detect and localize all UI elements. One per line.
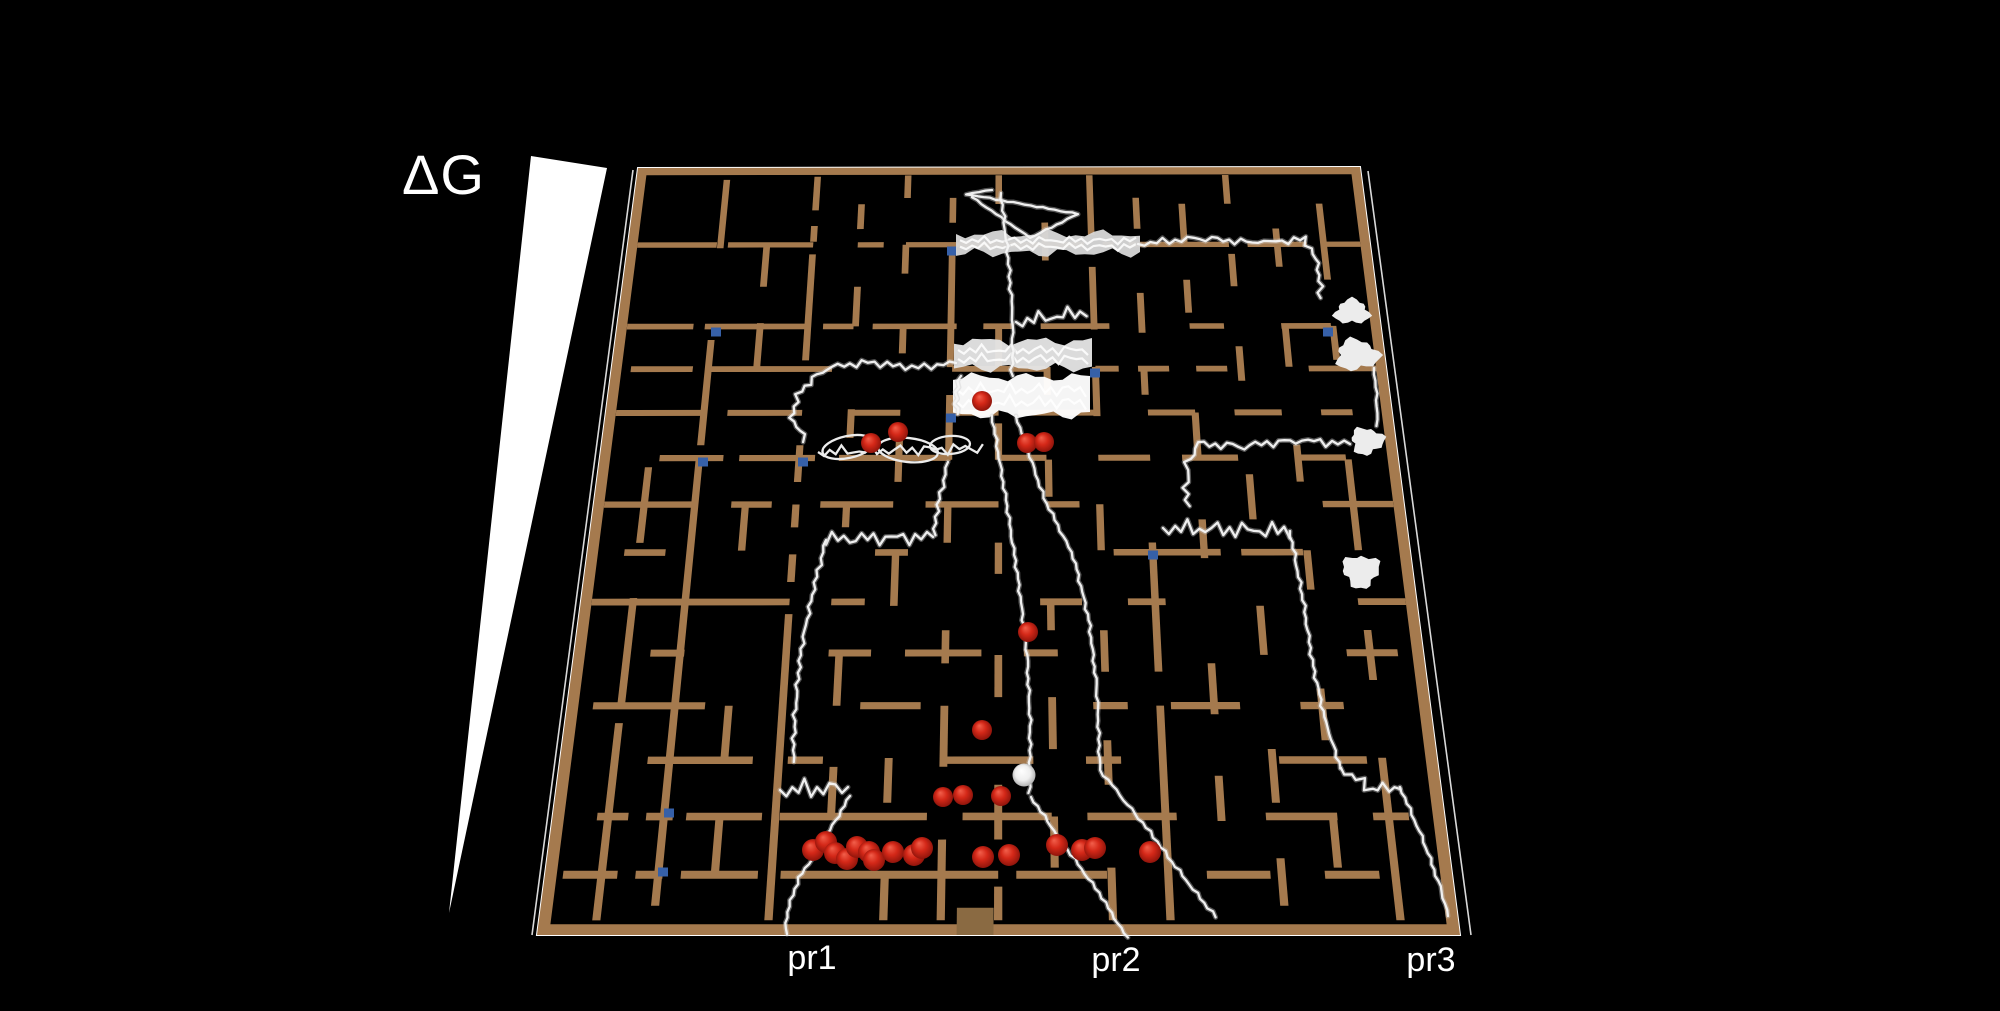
grid-dash-h bbox=[728, 242, 814, 247]
grid-dash-h bbox=[591, 599, 790, 606]
grid-dash-h bbox=[1047, 501, 1080, 507]
grid-dash-h bbox=[1098, 455, 1150, 461]
red-minimum-sphere bbox=[972, 391, 992, 411]
grid-dash-h bbox=[631, 366, 694, 372]
red-minimum-sphere bbox=[882, 841, 904, 863]
grid-dash-v bbox=[1246, 474, 1257, 519]
free-energy-scale-wedge bbox=[449, 156, 607, 913]
grid-dash-v bbox=[1293, 445, 1304, 482]
red-minimum-sphere bbox=[863, 849, 885, 871]
grid-dash-v bbox=[1222, 175, 1231, 204]
grid-dash-h bbox=[1322, 501, 1393, 507]
figure-canvas: ΔG pr1 pr2 pr3 bbox=[0, 0, 2000, 1011]
grid-dash-v bbox=[1256, 606, 1268, 655]
grid-dash-h bbox=[1016, 871, 1107, 879]
grid-dash-h bbox=[708, 366, 832, 372]
grid-dash-h bbox=[681, 871, 759, 879]
grid-dash-v bbox=[827, 767, 838, 817]
trajectory-central-line-1 bbox=[992, 416, 1032, 793]
grid-dash-h bbox=[627, 324, 694, 330]
grid-dash-v bbox=[902, 245, 910, 274]
grid-dash-h bbox=[593, 702, 706, 709]
grid-dash-h bbox=[604, 501, 695, 507]
grid-dash-v bbox=[1048, 697, 1057, 749]
grid-dash-h bbox=[963, 813, 1052, 821]
red-minimum-sphere bbox=[888, 422, 908, 442]
blue-marker bbox=[698, 458, 708, 467]
grid-dash-h bbox=[563, 871, 618, 879]
grid-dash-v bbox=[1047, 602, 1055, 630]
grid-dash-h bbox=[1279, 756, 1368, 764]
grid-dash-v bbox=[1149, 543, 1163, 672]
red-minimum-sphere bbox=[911, 837, 933, 859]
red-minimum-sphere bbox=[1139, 841, 1161, 863]
grid-dash-h bbox=[637, 242, 717, 248]
grid-dash-v bbox=[939, 706, 948, 767]
delta-g-label: ΔG bbox=[402, 147, 485, 203]
red-minimum-sphere bbox=[861, 433, 881, 453]
grid-dash-h bbox=[780, 871, 998, 879]
red-minimum-sphere bbox=[1084, 837, 1106, 859]
grid-dash-v bbox=[760, 245, 770, 287]
trajectory-halo-band2-left-run bbox=[789, 360, 956, 442]
grid-dash-h bbox=[1321, 242, 1360, 247]
grid-dash-v bbox=[1228, 254, 1237, 286]
blue-marker bbox=[1323, 328, 1333, 337]
grid-dash-v bbox=[890, 551, 899, 606]
grid-dash-v bbox=[1329, 816, 1342, 867]
grid-dash-v bbox=[899, 326, 907, 353]
grid-dash-h bbox=[1207, 871, 1271, 879]
red-minimum-sphere bbox=[1046, 834, 1068, 856]
blue-marker bbox=[711, 328, 721, 337]
grid-dash-v bbox=[994, 887, 1002, 921]
grid-lines bbox=[563, 175, 1410, 935]
grid-dash-h bbox=[875, 549, 908, 556]
blue-marker bbox=[664, 809, 674, 818]
grid-dash-h bbox=[946, 756, 1034, 764]
grid-dash-h bbox=[1041, 323, 1110, 329]
grid-dash-h bbox=[686, 813, 762, 821]
blue-marker bbox=[947, 247, 957, 256]
grid-dash-v bbox=[1137, 293, 1146, 333]
grid-dash-h bbox=[999, 455, 1047, 461]
grid-dash-h bbox=[1196, 366, 1228, 372]
grid-dash-v bbox=[1268, 749, 1280, 803]
grid-dash-v bbox=[592, 723, 623, 920]
grid-dash-h bbox=[1321, 409, 1353, 415]
grid-dash-v bbox=[944, 504, 952, 542]
grid-dash-v bbox=[852, 287, 861, 327]
sampling-blob bbox=[1352, 427, 1387, 456]
grid-dash-v bbox=[883, 758, 893, 803]
grid-dash-v bbox=[1303, 550, 1314, 589]
grid-dash-h bbox=[873, 324, 957, 330]
grid-dash-v bbox=[1215, 776, 1226, 821]
grid-dash-h bbox=[823, 324, 854, 330]
grid-dash-v bbox=[711, 817, 724, 878]
grid-dash-v bbox=[1089, 267, 1098, 330]
grid-dash-h bbox=[1234, 409, 1282, 415]
grid-dash-v bbox=[857, 204, 865, 229]
red-minimum-sphere bbox=[972, 720, 992, 740]
grid-dash-v bbox=[949, 198, 956, 223]
grid-dash-v bbox=[833, 655, 843, 706]
blue-marker bbox=[946, 414, 956, 423]
blue-marker bbox=[658, 868, 668, 877]
grid-dash-v bbox=[941, 630, 949, 663]
grid-dash-v bbox=[791, 505, 800, 528]
plane-edge-highlight bbox=[1368, 171, 1471, 935]
grid-dash-v bbox=[810, 226, 818, 242]
grid-dash-v bbox=[879, 877, 889, 920]
grid-dash-v bbox=[846, 409, 855, 438]
grid-dash-h bbox=[1325, 871, 1380, 879]
red-minimum-sphere bbox=[998, 844, 1020, 866]
trajectory-halo-central-line-1 bbox=[992, 416, 1032, 793]
grid-dash-v bbox=[1132, 198, 1140, 229]
grid-dash-h bbox=[1171, 702, 1241, 709]
grid-dash-h bbox=[624, 549, 666, 556]
grid-dash-v bbox=[651, 460, 703, 906]
sampling-blob bbox=[1343, 556, 1381, 589]
grid-dash-v bbox=[994, 655, 1002, 697]
grid-dash-v bbox=[1272, 229, 1282, 267]
grid-dash-h bbox=[860, 702, 921, 709]
grid-dash-h bbox=[831, 599, 865, 606]
grid-dash-h bbox=[828, 650, 871, 657]
grid-dash-h bbox=[731, 501, 772, 507]
grid-dash-v bbox=[1100, 630, 1109, 672]
grid-dash-v bbox=[904, 175, 911, 198]
grid-dash-v bbox=[1096, 504, 1105, 550]
axis-label-pr3: pr3 bbox=[1406, 943, 1455, 977]
grid-dash-v bbox=[787, 554, 796, 582]
grid-dash-h bbox=[853, 410, 900, 416]
grid-dash-v bbox=[995, 543, 1002, 574]
grid-dash-h bbox=[820, 501, 893, 507]
blue-marker bbox=[1090, 369, 1100, 378]
grid-dash-h bbox=[597, 813, 629, 821]
red-minimum-sphere bbox=[991, 786, 1011, 806]
grid-dash-v bbox=[1276, 858, 1288, 906]
trajectory-right-descender bbox=[1290, 531, 1340, 768]
sampling-blob bbox=[1332, 297, 1372, 324]
grid-dash-h bbox=[1189, 323, 1224, 329]
grid-dash-v bbox=[617, 598, 637, 706]
grid-dash-v bbox=[753, 323, 764, 367]
axis-label-pr1: pr1 bbox=[787, 941, 836, 975]
grid-dash-v bbox=[721, 706, 733, 758]
grid-dash-v bbox=[1183, 280, 1192, 313]
grid-dash-v bbox=[717, 180, 730, 248]
grid-dash-v bbox=[842, 505, 850, 528]
grid-dash-v bbox=[738, 505, 749, 551]
grid-dash-h bbox=[1148, 410, 1196, 416]
grid-dash-h bbox=[1266, 813, 1338, 821]
red-minimum-sphere bbox=[1017, 433, 1037, 453]
grid-dash-h bbox=[1298, 454, 1347, 460]
trajectory-kite bbox=[966, 190, 1078, 238]
grid-dash-h bbox=[616, 410, 705, 416]
blue-marker bbox=[798, 458, 808, 467]
grid-dash-h bbox=[1358, 598, 1407, 605]
grid-dash-h bbox=[659, 455, 723, 461]
red-minimum-sphere bbox=[933, 787, 953, 807]
red-minimum-sphere bbox=[1018, 622, 1038, 642]
trajectory-halo-right-left-run bbox=[1183, 439, 1351, 506]
red-minimum-sphere bbox=[972, 846, 994, 868]
red-minimum-sphere bbox=[1034, 432, 1054, 452]
grid-dash-v bbox=[1086, 175, 1095, 235]
grid-dash-h bbox=[1040, 598, 1082, 605]
grid-dash-h bbox=[780, 813, 928, 821]
red-minimum-sphere bbox=[953, 785, 973, 805]
grid-dash-h bbox=[1128, 598, 1166, 605]
white-state-sphere bbox=[1013, 764, 1036, 787]
grid-dash-v bbox=[937, 840, 947, 921]
grid-dash-v bbox=[1140, 367, 1148, 395]
axis-label-pr2: pr2 bbox=[1091, 943, 1140, 977]
grid-dash-v bbox=[812, 177, 821, 211]
grid-dash-h bbox=[1086, 756, 1121, 764]
grid-dash-v bbox=[802, 254, 816, 360]
grid-dash-v bbox=[697, 340, 715, 445]
trajectory-band2-left-run bbox=[789, 360, 956, 442]
grid-dash-v bbox=[1282, 326, 1293, 367]
grid-dash-h bbox=[647, 757, 753, 765]
blue-marker bbox=[1148, 551, 1158, 560]
landscape-scene bbox=[0, 0, 2000, 1011]
grid-dash-h bbox=[858, 242, 884, 247]
grid-dash-v bbox=[1236, 346, 1246, 380]
border-notch bbox=[957, 908, 994, 935]
trajectory-halo-left-descender bbox=[792, 540, 826, 762]
